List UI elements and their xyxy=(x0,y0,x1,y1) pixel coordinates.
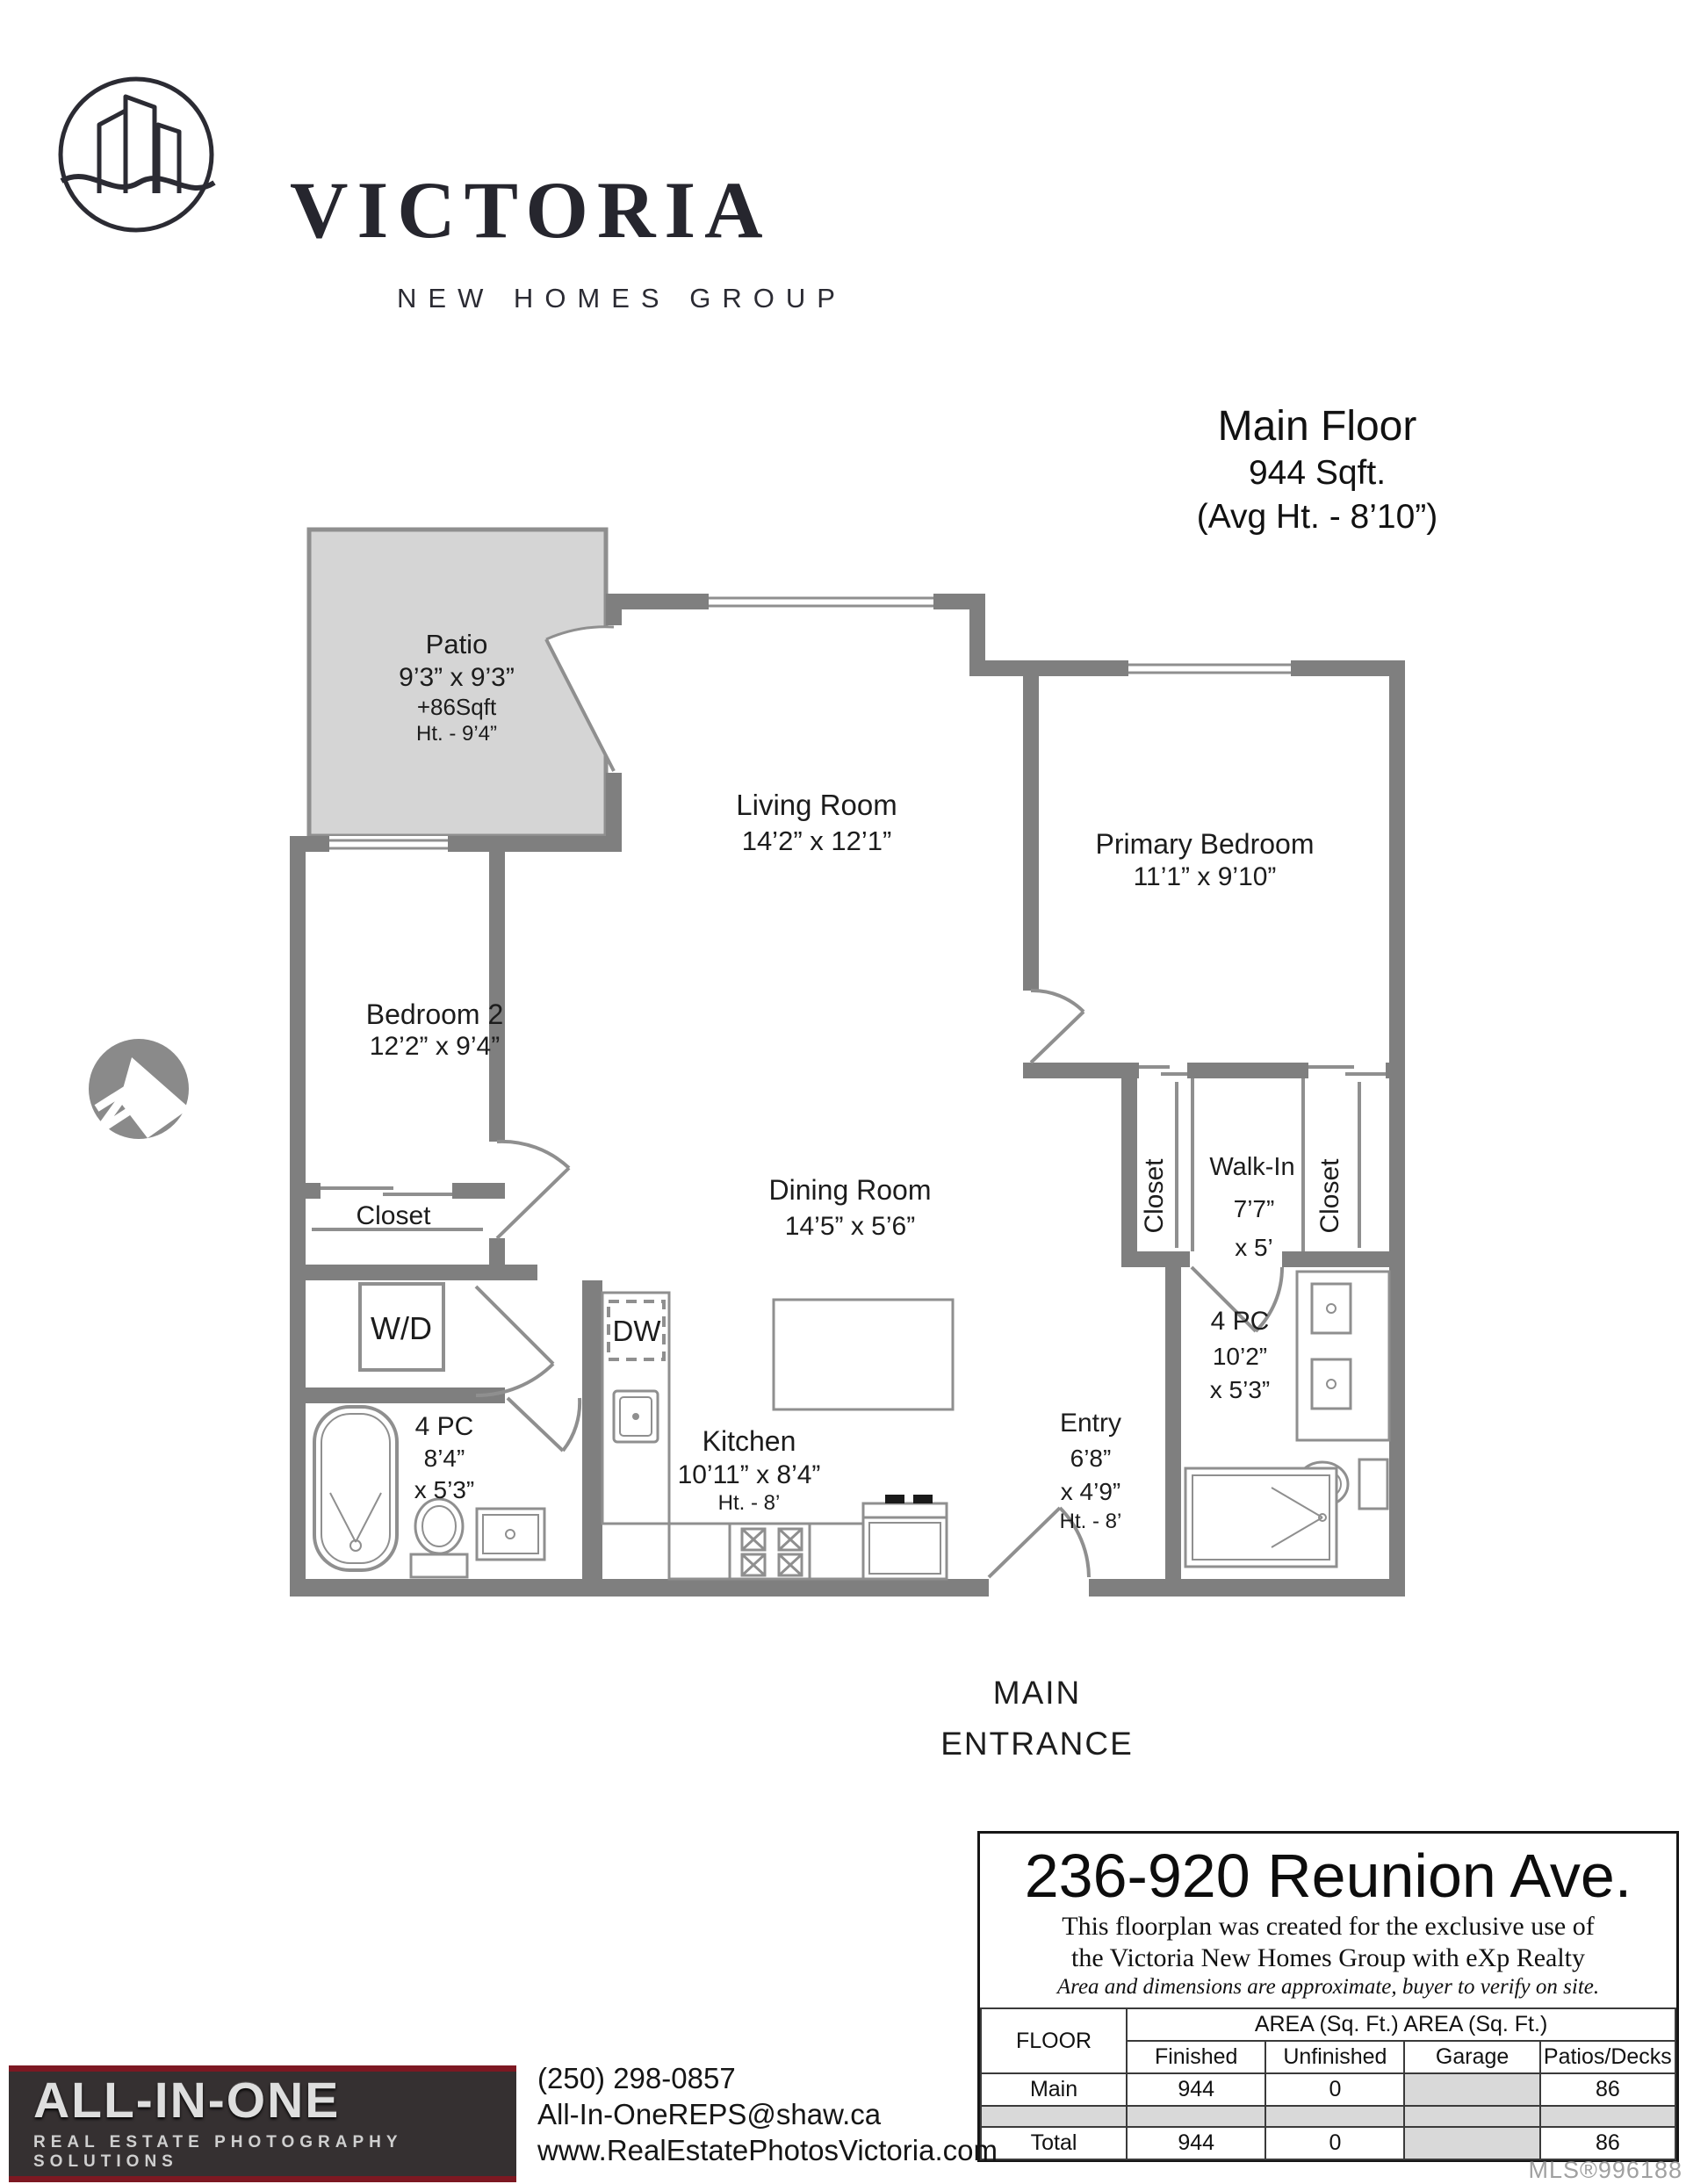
wd-label: W/D xyxy=(371,1310,432,1346)
col-unfinished: Unfinished xyxy=(1265,2041,1404,2073)
total-garage-cell xyxy=(1404,2127,1539,2159)
contact-website: www.RealEstatePhotosVictoria.com xyxy=(537,2132,998,2168)
kitchen-label: Kitchen xyxy=(702,1425,796,1457)
patio-extra-area: +86Sqft xyxy=(417,694,497,720)
area-header-1: AREA (Sq. Ft.) xyxy=(1255,2012,1399,2036)
photography-company-name: ALL-IN-ONE xyxy=(33,2072,516,2130)
closet-right-label: Closet xyxy=(1315,1158,1344,1234)
total-patios-cell: 86 xyxy=(1540,2127,1675,2159)
range xyxy=(863,1495,947,1579)
total-floor-cell: Total xyxy=(981,2127,1127,2159)
area-span-header: AREA (Sq. Ft.) AREA (Sq. Ft.) xyxy=(1127,2008,1675,2041)
table-row-main: Main 944 0 86 xyxy=(981,2073,1675,2106)
photography-logo-box: ALL-IN-ONE REAL ESTATE PHOTOGRAPHY SOLUT… xyxy=(9,2065,516,2182)
island xyxy=(774,1300,953,1409)
bath-left-label: 4 PC xyxy=(415,1412,474,1441)
vanity-sink xyxy=(477,1509,544,1560)
floor-column-header: FLOOR xyxy=(981,2008,1127,2073)
primary-bedroom-dims: 11’1” x 9’10” xyxy=(1134,862,1277,891)
photography-tagline: REAL ESTATE PHOTOGRAPHY SOLUTIONS xyxy=(33,2133,516,2172)
bath-left-dim1: 8’4” xyxy=(424,1445,465,1472)
entry-label: Entry xyxy=(1060,1409,1121,1438)
closet-bed2-label: Closet xyxy=(356,1201,431,1230)
bedroom2-dims: 12’2” x 9’4” xyxy=(370,1032,500,1061)
bath-right-dim1: 10’2” xyxy=(1213,1343,1267,1370)
disclaimer-line1: This floorplan was created for the exclu… xyxy=(980,1911,1676,1943)
photography-contact-block: (250) 298-0857 All-In-OneREPS@shaw.ca ww… xyxy=(537,2060,998,2168)
living-room-label: Living Room xyxy=(736,789,897,821)
table-header-row-1: FLOOR AREA (Sq. Ft.) AREA (Sq. Ft.) xyxy=(981,2008,1675,2041)
patio-dims: 9’3” x 9’3” xyxy=(399,663,515,692)
bath-right-label: 4 PC xyxy=(1211,1307,1270,1336)
main-floor-cell: Main xyxy=(981,2073,1127,2106)
bath-right-dim2: x 5’3” xyxy=(1210,1376,1270,1403)
listing-info-box: 236-920 Reunion Ave. This floorplan was … xyxy=(977,1831,1679,2162)
bedroom2-label: Bedroom 2 xyxy=(366,998,504,1030)
walkin-dim1: 7’7” xyxy=(1234,1195,1275,1222)
main-unfinished-cell: 0 xyxy=(1265,2073,1404,2106)
bathtub xyxy=(314,1407,397,1570)
col-garage: Garage xyxy=(1404,2041,1539,2073)
total-finished-cell: 944 xyxy=(1127,2127,1265,2159)
entry-dim2: x 4’9” xyxy=(1061,1478,1120,1505)
contact-phone: (250) 298-0857 xyxy=(537,2060,998,2096)
mls-number: MLS®996188 xyxy=(1528,2157,1682,2184)
col-finished: Finished xyxy=(1127,2041,1265,2073)
main-entrance-line1: MAIN xyxy=(993,1675,1082,1711)
col-patios-decks: Patios/Decks xyxy=(1540,2041,1675,2073)
shower xyxy=(1185,1468,1337,1567)
dining-room-dims: 14’5” x 5’6” xyxy=(785,1212,915,1241)
north-arrow-icon xyxy=(89,1039,190,1139)
area-table: FLOOR AREA (Sq. Ft.) AREA (Sq. Ft.) Fini… xyxy=(980,2007,1676,2160)
living-room-dims: 14’2” x 12’1” xyxy=(742,825,892,856)
dw-label: DW xyxy=(613,1315,662,1347)
table-row-total: Total 944 0 86 xyxy=(981,2127,1675,2159)
entry-height: Ht. - 8’ xyxy=(1060,1510,1122,1533)
primary-bedroom-label: Primary Bedroom xyxy=(1096,828,1315,860)
listing-address: 236-920 Reunion Ave. xyxy=(980,1841,1676,1911)
patio-height: Ht. - 9’4” xyxy=(416,722,497,746)
main-garage-cell xyxy=(1404,2073,1539,2106)
walkin-dim2: x 5’ xyxy=(1235,1234,1273,1261)
main-patios-cell: 86 xyxy=(1540,2073,1675,2106)
main-finished-cell: 944 xyxy=(1127,2073,1265,2106)
disclaimer-line2: the Victoria New Homes Group with eXp Re… xyxy=(980,1943,1676,1974)
bath-left-dim2: x 5’3” xyxy=(414,1476,474,1503)
closet-left-label: Closet xyxy=(1140,1158,1169,1234)
dining-room-label: Dining Room xyxy=(769,1174,932,1206)
area-header-2: AREA (Sq. Ft.) xyxy=(1403,2012,1547,2036)
walkin-label: Walk-In xyxy=(1209,1153,1294,1181)
kitchen-dims: 10’11” x 8’4” xyxy=(678,1460,821,1489)
total-unfinished-cell: 0 xyxy=(1265,2127,1404,2159)
floorplan-page: { "branding": { "logo_title": "VICTORIA"… xyxy=(0,0,1686,2182)
patio-label: Patio xyxy=(426,629,488,660)
kitchen-height: Ht. - 8’ xyxy=(718,1491,781,1515)
contact-email: All-In-OneREPS@shaw.ca xyxy=(537,2096,998,2132)
entry-dim1: 6’8” xyxy=(1070,1445,1112,1472)
main-entrance-line2: ENTRANCE xyxy=(940,1726,1134,1762)
disclaimer-line3: Area and dimensions are approximate, buy… xyxy=(980,1974,1676,2000)
table-row-spacer xyxy=(981,2106,1675,2127)
